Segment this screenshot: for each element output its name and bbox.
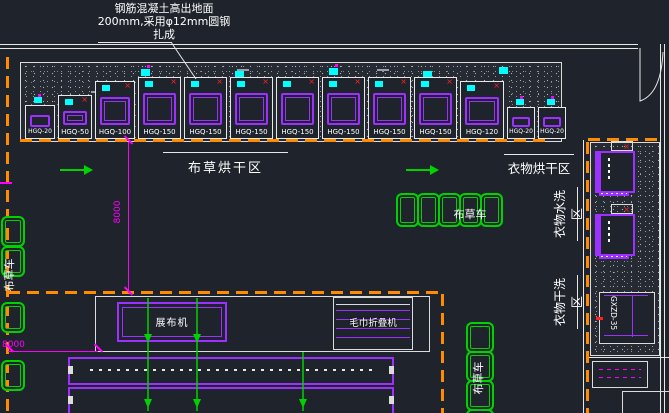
zone-label-linen-drying[interactable]: 布草烘干区 [158,157,293,176]
linen-cart[interactable] [466,409,494,413]
annotation-line-2: 200mm,采用φ12mm圆钢 [58,15,270,28]
point-marker-icon [147,65,150,68]
dryer-machine[interactable]: × HGQ-50 [58,95,92,139]
dryer-door [327,93,360,125]
dryer-machine[interactable]: HGQ-20 [25,105,55,139]
valve-mark-icon: × [308,78,315,86]
partition-wall-line[interactable] [583,140,584,413]
valve-mark-icon: × [354,78,361,86]
control-box-icon [421,81,429,87]
flow-arrowhead-icon [84,165,93,175]
control-box-icon [145,81,153,87]
spreader-label: 展布机 [119,314,225,329]
dryer-label: HGQ-150 [185,128,226,136]
cart-label[interactable]: 布草车 [470,352,486,404]
valve-mark-icon: × [446,78,453,86]
dryer-machine[interactable]: × HGQ-100 [95,81,135,139]
linen-cart[interactable] [396,193,419,227]
dryer-door [235,93,268,125]
valve-mark-icon: × [81,96,88,104]
point-marker-icon [335,64,338,67]
dryer-door [189,93,222,125]
bracket-mark-icon [377,69,389,71]
cart-label[interactable]: 布草车 [446,206,494,222]
duct-marker-icon [499,67,508,74]
bench-top-line [588,357,669,358]
zone-label-clothes-drying[interactable]: 衣物烘干区 [496,158,582,177]
dryer-machine[interactable]: × HGQ-150 [276,77,319,139]
zone-label-clothes-dryclean[interactable]: 衣物干洗区 [551,274,567,330]
zone-overline [504,154,574,155]
washing-area-platform[interactable]: × × GXZD-35 [590,142,660,356]
linen-cart[interactable] [1,360,25,391]
flatwork-ironer[interactable] [68,387,394,413]
dryer-machine[interactable]: × HGQ-120 [460,81,504,139]
dryer-machine[interactable]: HGQ-20 [538,107,566,139]
duct-marker-icon [329,68,338,75]
work-table[interactable] [622,391,669,413]
annotation-note[interactable]: 钢筋混凝土高出地面 200mm,采用φ12mm圆钢 扎成 [58,2,270,41]
dryer-machine[interactable]: × HGQ-150 [368,77,411,139]
concrete-platform[interactable]: HGQ-20 × HGQ-50 × HGQ-100 × HGQ-150 × HG… [20,62,562,142]
control-box-icon [467,85,475,91]
dryclean-divider-line [632,295,633,337]
towel-folding-machine[interactable]: 毛巾折叠机 [333,297,413,350]
dryer-label: HGQ-20 [26,128,54,136]
control-box-icon [329,81,337,87]
boundary-dash-room-top[interactable] [8,291,442,294]
annotation-underline [98,42,172,43]
zone-overline [163,152,288,153]
dryer-label: HGQ-150 [369,128,410,136]
dryer-door [419,93,452,125]
dimension-tick [0,182,12,184]
dryer-machine[interactable]: HGQ-20 [507,107,535,139]
dryer-label: HGQ-20 [539,128,565,136]
spreader-machine[interactable]: 展布机 [117,302,227,342]
towel-folder-top-line [336,304,410,305]
dryer-label: HGQ-150 [277,128,318,136]
top-wall-line-inner [0,48,638,49]
valve-mark-icon: × [170,78,177,86]
dryer-machine[interactable]: × HGQ-150 [184,77,227,139]
dryer-door [373,93,406,125]
dryer-label: HGQ-150 [323,128,364,136]
dryer-door [465,97,499,125]
annotation-line-3: 扎成 [58,28,270,41]
dimension-text-vertical[interactable]: 8000 [113,197,125,227]
dryclean-machine[interactable]: GXZD-35 [599,292,655,344]
control-box-icon [102,85,110,91]
top-wall-line[interactable] [0,44,638,45]
dryer-door [30,115,50,127]
duct-marker-icon [141,69,150,76]
annotation-line-1: 钢筋混凝土高出地面 [58,2,270,15]
flow-arrowhead-icon [430,165,439,175]
dryer-door [63,111,87,125]
washer-extractor[interactable] [595,151,635,193]
control-box-icon [191,81,199,87]
valve-mark-icon [596,317,603,320]
dryer-machine[interactable]: × HGQ-150 [414,77,457,139]
dryer-door [100,97,130,125]
control-box-icon [283,81,291,87]
dryer-door [512,117,530,127]
dryer-machine[interactable]: × HGQ-150 [230,77,273,139]
valve-mark-icon: × [400,78,407,86]
flatwork-ironer[interactable] [68,357,394,385]
horizontal-dimension-line[interactable] [8,351,98,352]
dryer-label: HGQ-150 [231,128,272,136]
cad-drawing-canvas: 钢筋混凝土高出地面 200mm,采用φ12mm圆钢 扎成 HGQ-20 × HG… [0,0,669,413]
control-box-icon [516,99,524,105]
washer-valve-box: × [611,141,633,151]
dimension-text-horizontal[interactable]: 8000 [2,340,36,350]
dryer-door [143,93,176,125]
control-box-icon [65,99,73,105]
dryclean-model-label: GXZD-35 [605,296,618,340]
dryer-machine[interactable]: × HGQ-150 [138,77,181,139]
point-marker-icon [38,94,41,97]
dryer-label: HGQ-150 [415,128,456,136]
linen-cart[interactable] [1,302,25,333]
dryer-machine[interactable]: × HGQ-150 [322,77,365,139]
dryer-machine-row: HGQ-20 × HGQ-50 × HGQ-100 × HGQ-150 × HG… [25,77,559,139]
control-box-icon [375,81,383,87]
valve-mark-icon: × [216,78,223,86]
valve-mark-icon: × [262,78,269,86]
linen-cart[interactable] [466,322,494,353]
control-box-icon [547,99,555,105]
dryer-door [543,117,561,127]
work-table[interactable] [592,361,648,388]
linen-cart[interactable] [417,193,440,227]
cart-label[interactable]: 布草车 [1,249,17,301]
bracket-mark-icon [237,69,249,71]
control-box-icon [34,97,42,103]
dryer-label: HGQ-50 [59,128,91,136]
towel-folder-label: 毛巾折叠机 [334,315,412,329]
dryer-door [281,93,314,125]
dryer-label: HGQ-120 [461,128,503,136]
washer-pedestal [599,191,629,196]
boundary-dash-right-top[interactable] [588,138,660,141]
vertical-dimension-line[interactable] [128,142,129,293]
dryer-label: HGQ-100 [96,128,134,136]
dryer-label: HGQ-20 [508,128,534,136]
valve-mark-icon: × [493,82,500,90]
boundary-dash-platform[interactable] [20,139,545,142]
valve-mark-icon: × [124,82,131,90]
zone-label-clothes-washing[interactable]: 衣物水洗区 [551,186,567,242]
linen-cart[interactable] [1,216,25,247]
washer-pedestal [599,254,629,259]
boundary-dash-room-right[interactable] [441,294,444,413]
washer-extractor[interactable] [595,214,635,256]
dryer-label: HGQ-150 [139,128,180,136]
point-marker-icon [520,96,523,99]
boundary-dash-right[interactable] [586,142,589,413]
point-marker-icon [551,96,554,99]
control-box-icon [237,81,245,87]
ironer-belt-marks [90,369,372,371]
washer-valve-box: × [611,204,633,214]
